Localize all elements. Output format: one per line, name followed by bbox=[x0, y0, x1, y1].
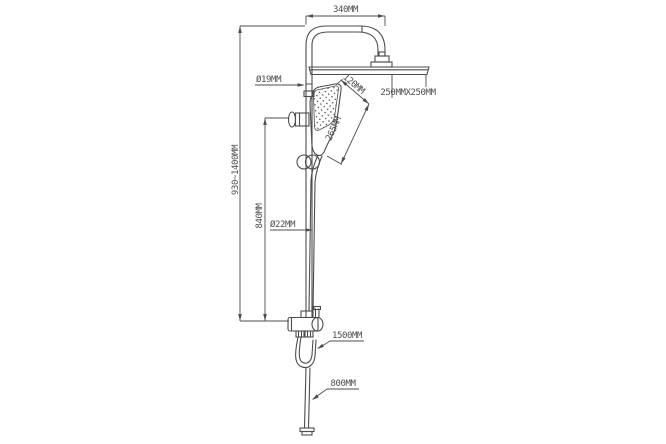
dimension-arm-width: 340MM bbox=[306, 5, 385, 26]
dim-label-800mm: 800MM bbox=[330, 379, 356, 389]
callout-shower-hose-length: 1500MM bbox=[317, 331, 364, 349]
mixer-valve bbox=[288, 307, 323, 338]
dim-label-340mm: 340MM bbox=[333, 5, 359, 15]
callout-inlet-hose-length: 800MM bbox=[312, 379, 359, 400]
shower-column-dimension-drawing: 340MM 930~1400MM 840MM Ø19MM Ø22MM 250MM… bbox=[0, 0, 666, 444]
dim-label-250x250: 250MMX250MM bbox=[380, 88, 436, 98]
technical-drawing-canvas: 340MM 930~1400MM 840MM Ø19MM Ø22MM 250MM… bbox=[0, 0, 666, 444]
dimension-overall-height: 930~1400MM bbox=[231, 26, 305, 321]
mixer-nut-right bbox=[305, 331, 313, 337]
slider-knob bbox=[297, 155, 320, 169]
dim-label-840mm: 840MM bbox=[255, 202, 265, 228]
dim-label-19mm: Ø19MM bbox=[256, 74, 282, 85]
dim-label-1500mm: 1500MM bbox=[332, 331, 363, 341]
inlet-hose bbox=[300, 368, 314, 435]
callout-head-size: 250MMX250MM bbox=[380, 75, 436, 99]
callout-upper-pipe-diameter: Ø19MM bbox=[255, 74, 305, 87]
rain-head-connector bbox=[371, 52, 392, 67]
dim-label-930-1400mm: 930~1400MM bbox=[231, 144, 241, 195]
rain-shower-head bbox=[309, 67, 429, 75]
shower-hose-loop bbox=[296, 337, 316, 368]
dim-label-22mm: Ø22MM bbox=[270, 219, 296, 230]
hand-shower-hose bbox=[309, 155, 322, 311]
mixer-nut-left bbox=[296, 331, 304, 337]
